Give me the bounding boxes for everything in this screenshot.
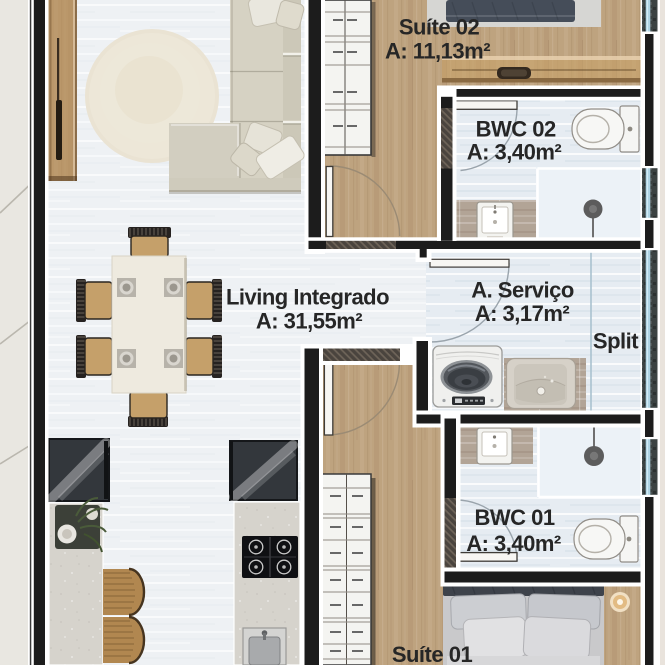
svg-text:A: 3,17m²: A: 3,17m² — [475, 301, 570, 326]
svg-text:Suíte 02: Suíte 02 — [399, 15, 480, 40]
svg-text:A. Serviço: A. Serviço — [471, 278, 574, 303]
svg-text:Living Integrado: Living Integrado — [226, 285, 389, 310]
svg-text:BWC 02: BWC 02 — [476, 117, 556, 142]
svg-text:A: 11,13m²: A: 11,13m² — [385, 39, 490, 64]
svg-text:BWC 01: BWC 01 — [474, 505, 554, 530]
svg-text:Suíte 01: Suíte 01 — [392, 642, 473, 665]
svg-text:Split: Split — [593, 329, 639, 354]
svg-text:A: 3,40m²: A: 3,40m² — [466, 531, 561, 556]
svg-text:A: 3,40m²: A: 3,40m² — [467, 140, 562, 165]
svg-text:A: 31,55m²: A: 31,55m² — [256, 309, 362, 334]
